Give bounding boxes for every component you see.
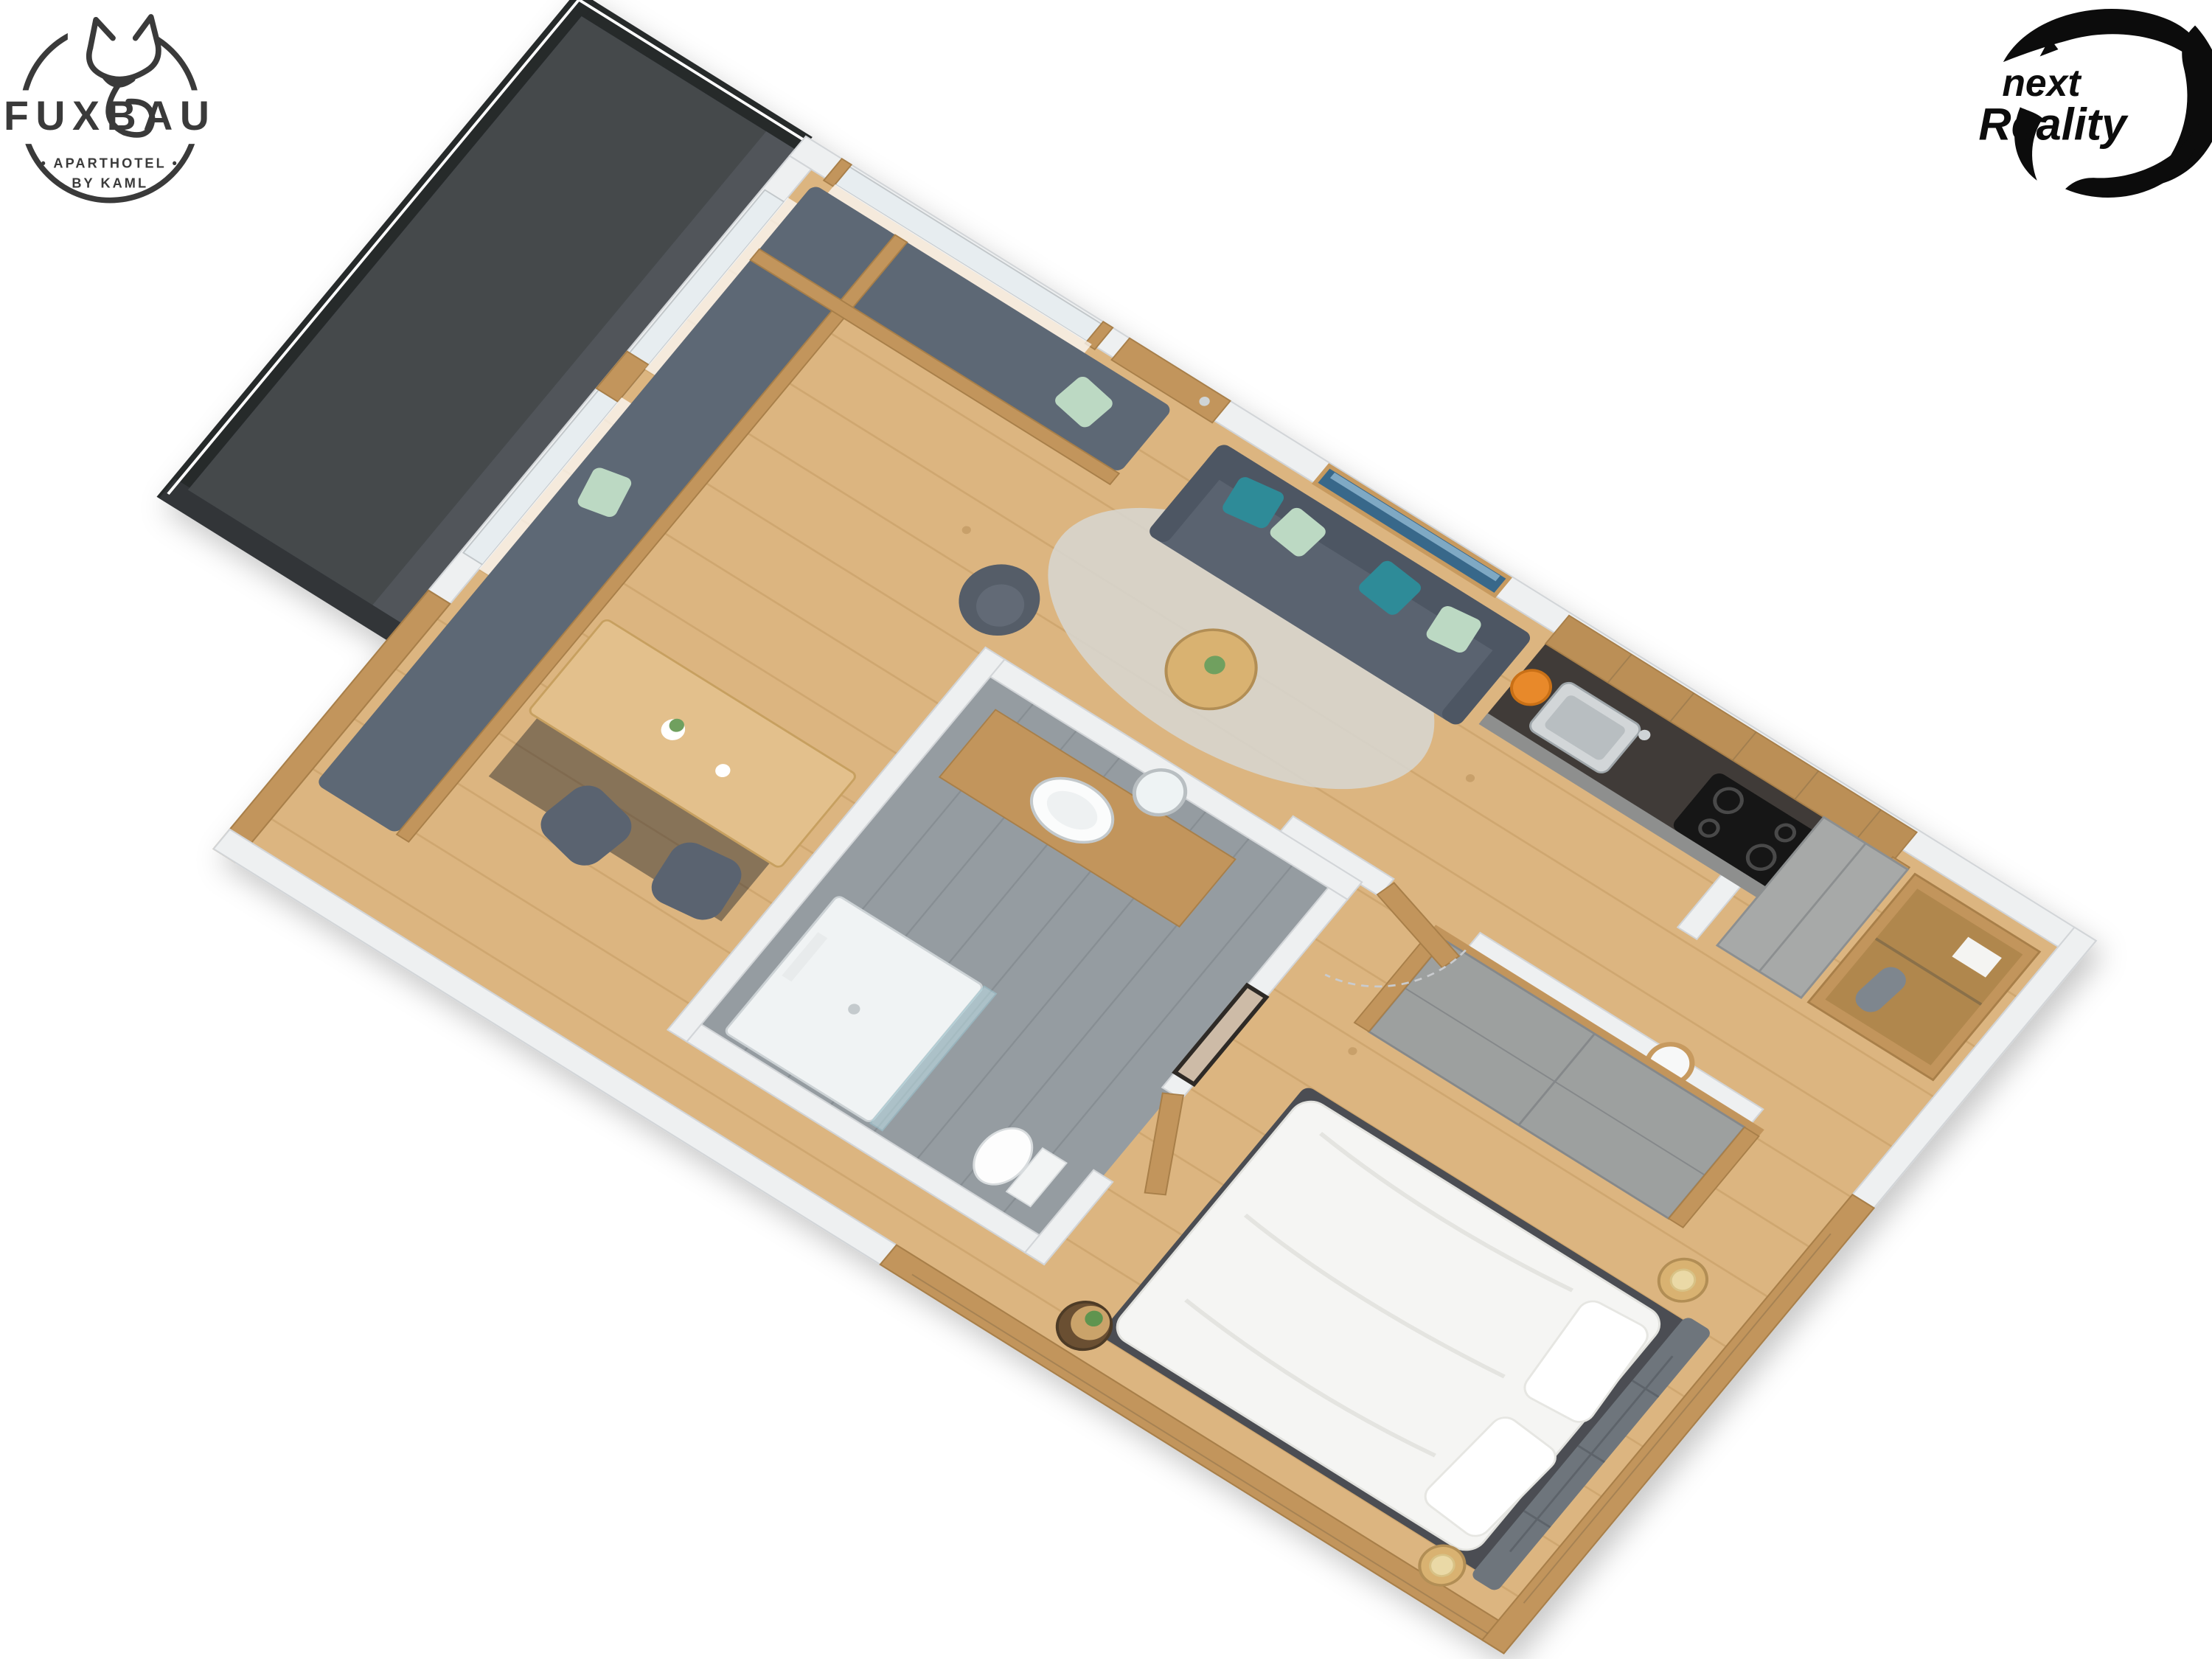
watermark-word1: next	[2002, 61, 2081, 104]
watermark-word2: Reality	[1978, 99, 2129, 149]
fuxbau-byline-text: BY KAML	[72, 175, 148, 190]
logo-gap-top	[68, 6, 158, 88]
fuxbau-tagline-text: • APARTHOTEL •	[41, 156, 179, 171]
apartment-3d-plan	[0, 0, 2098, 1653]
fuxbau-logo: FUXBAU • APARTHOTEL • BY KAML	[0, 6, 226, 201]
floor-plan-canvas: FUXBAU • APARTHOTEL • BY KAML next Reali…	[0, 0, 2212, 1659]
floor-plan-render: FUXBAU • APARTHOTEL • BY KAML next Reali…	[0, 0, 2212, 1659]
next-reality-logo: next Reality	[1978, 9, 2212, 198]
fuxbau-brand-text: FUXBAU	[4, 93, 217, 139]
